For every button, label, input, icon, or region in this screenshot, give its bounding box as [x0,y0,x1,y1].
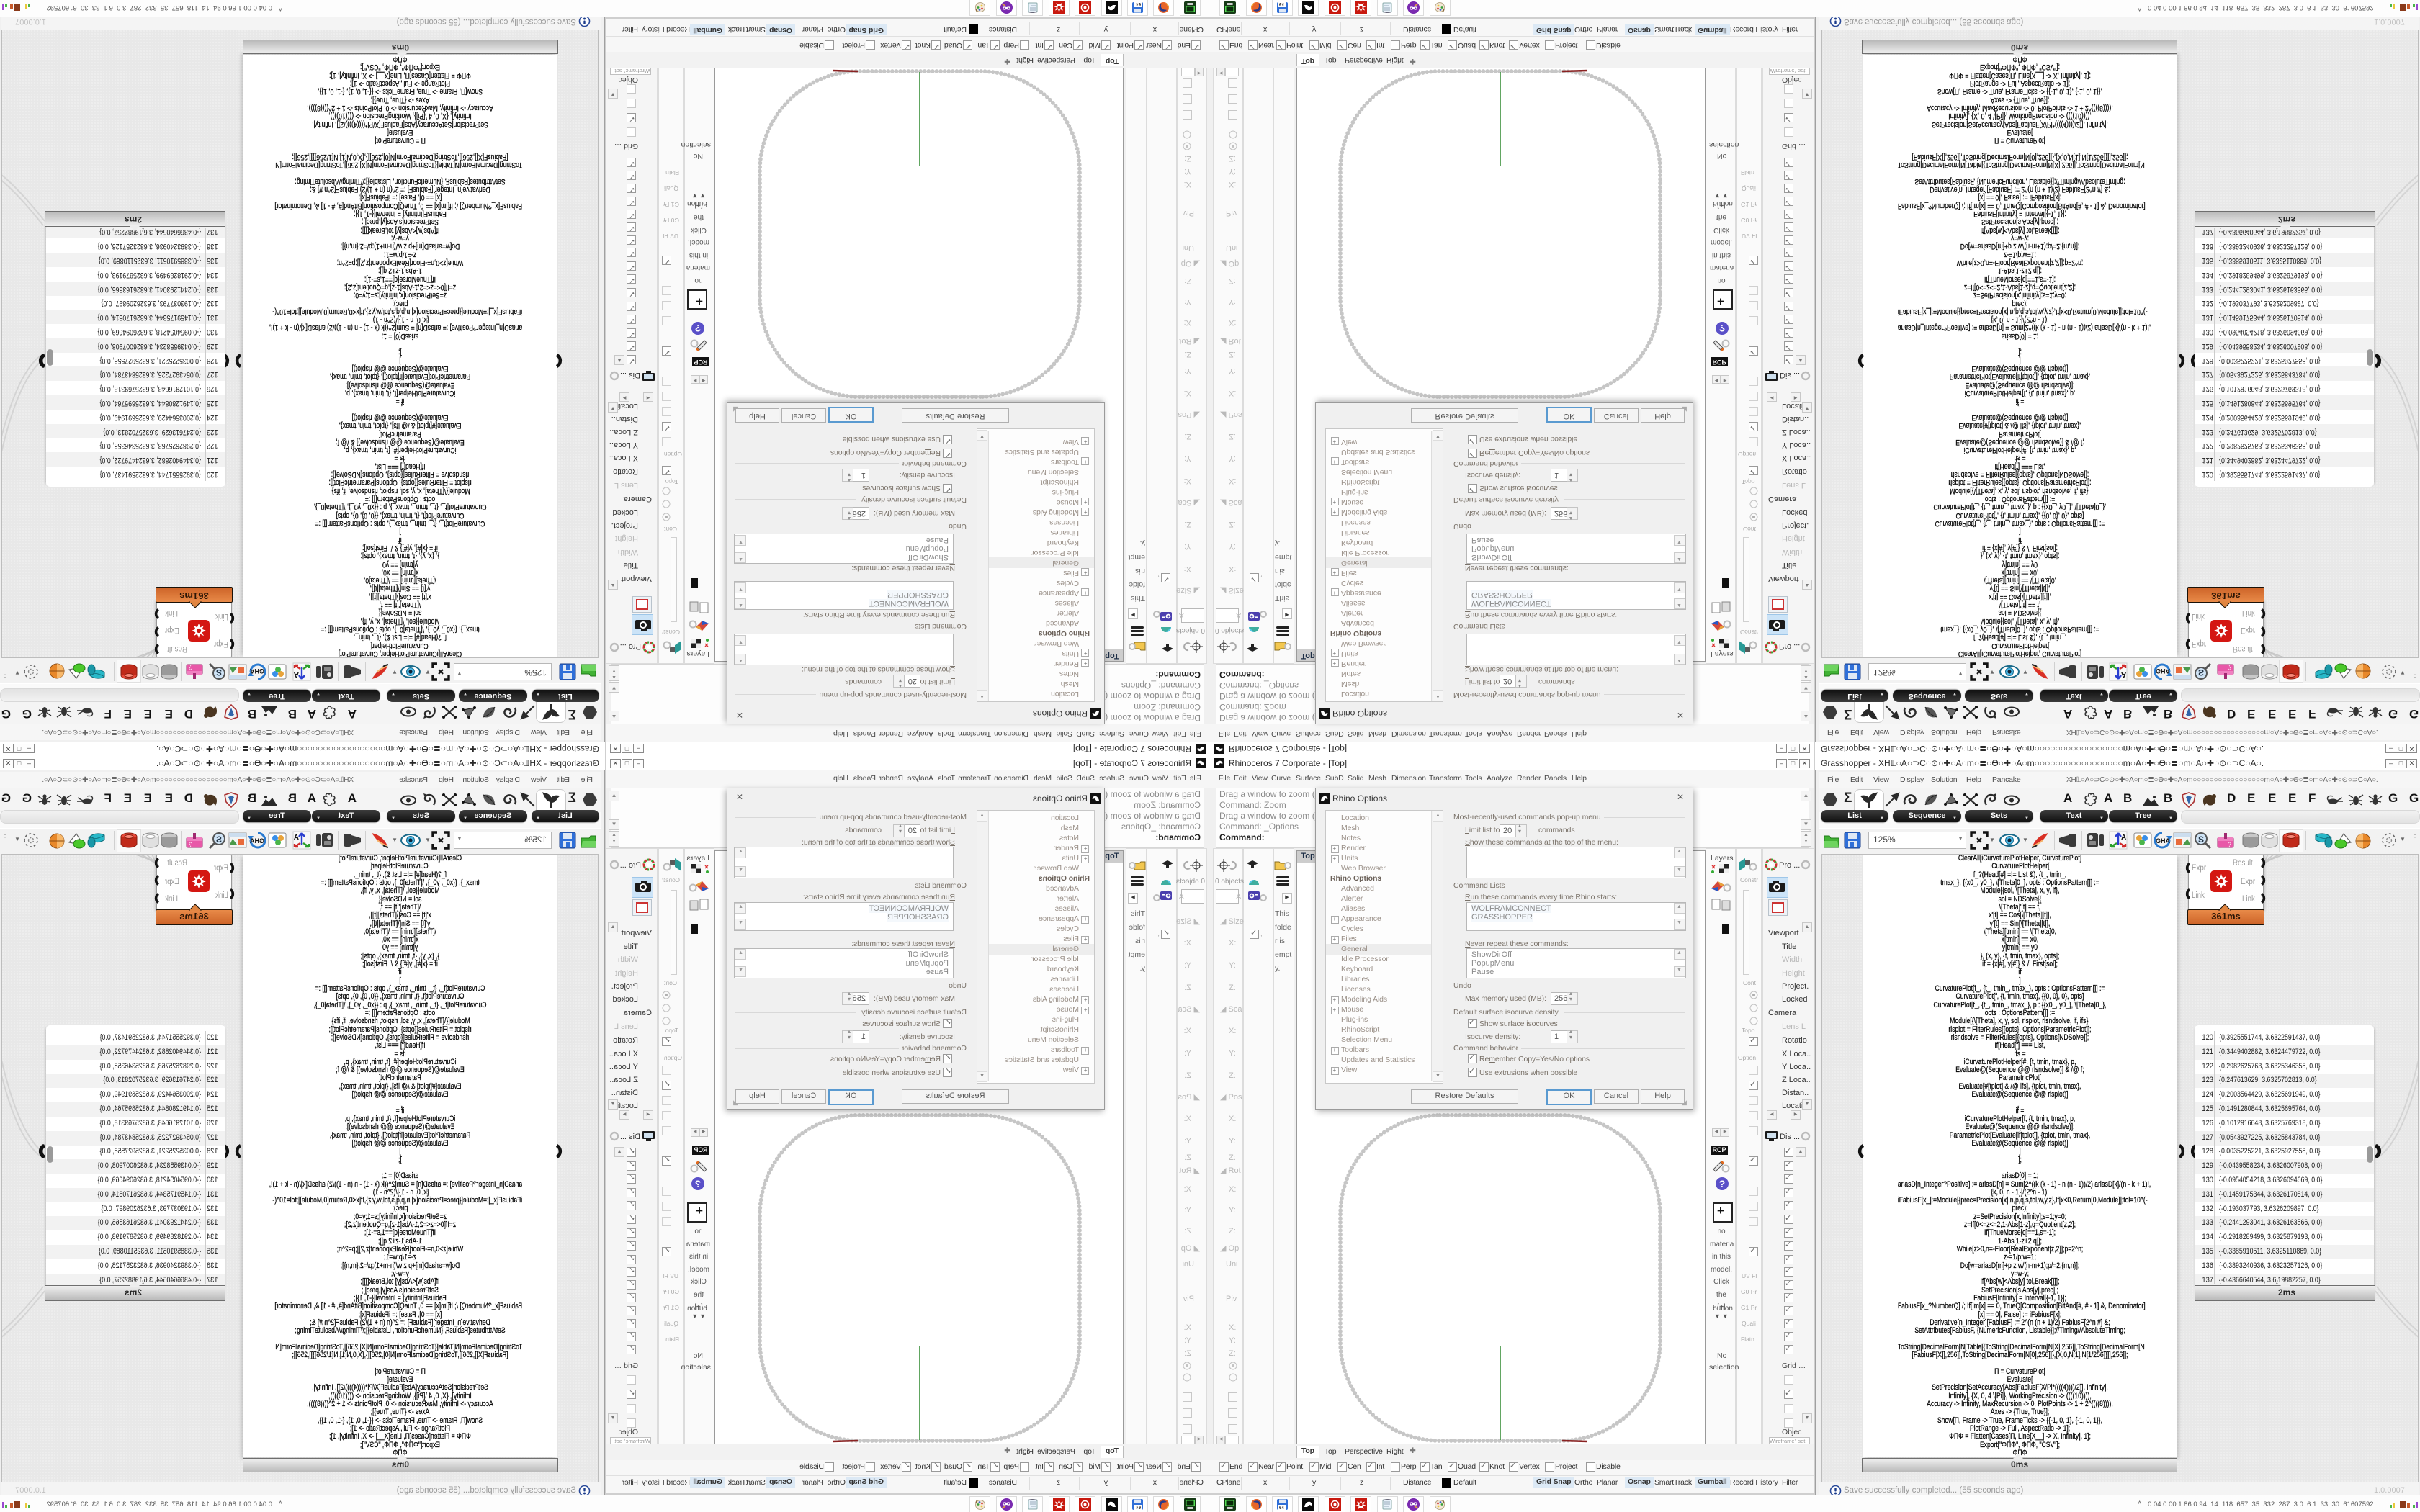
svg-text:64: 64 [1136,1506,1141,1511]
svg-text:S: S [2198,667,2204,678]
svg-text:S: S [216,834,222,845]
svg-text:64: 64 [1279,1506,1284,1511]
svg-text:S: S [2198,834,2204,845]
svg-text:A: A [294,834,299,842]
svg-text:A: A [2121,670,2126,678]
svg-text:GHA: GHA [250,837,265,845]
svg-text:?: ? [695,1178,702,1189]
svg-text:?: ? [695,323,702,334]
svg-text:GHA: GHA [2156,667,2171,675]
svg-text:?: ? [189,664,192,671]
svg-text:A: A [2121,834,2126,842]
svg-text:?: ? [189,841,192,848]
svg-text:?: ? [2228,664,2231,671]
svg-text:S: S [216,667,222,678]
svg-text:A: A [294,670,299,678]
svg-text:?: ? [1719,323,1726,334]
svg-text:64: 64 [1136,1,1141,6]
svg-text:GHA: GHA [250,667,265,675]
svg-text:?: ? [2228,841,2231,848]
svg-text:GHA: GHA [2156,837,2171,845]
svg-text:64: 64 [1279,1,1284,6]
svg-text:?: ? [1719,1178,1726,1189]
